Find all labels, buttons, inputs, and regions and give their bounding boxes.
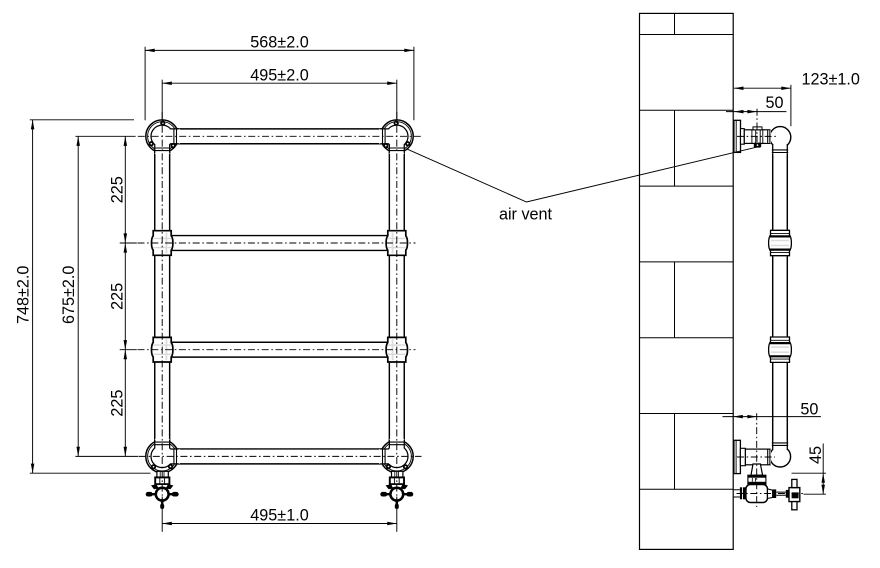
svg-text:748±2.0: 748±2.0 (14, 266, 32, 324)
svg-text:air vent: air vent (499, 206, 553, 224)
svg-text:50: 50 (765, 94, 783, 112)
svg-text:495±2.0: 495±2.0 (250, 66, 308, 84)
svg-text:675±2.0: 675±2.0 (60, 266, 78, 324)
svg-text:225: 225 (109, 176, 127, 203)
svg-text:495±1.0: 495±1.0 (250, 507, 308, 525)
svg-text:225: 225 (109, 390, 127, 417)
svg-text:50: 50 (800, 400, 818, 418)
svg-text:45: 45 (807, 446, 825, 464)
svg-text:568±2.0: 568±2.0 (250, 34, 308, 52)
svg-text:123±1.0: 123±1.0 (802, 71, 860, 89)
svg-text:225: 225 (109, 283, 127, 310)
